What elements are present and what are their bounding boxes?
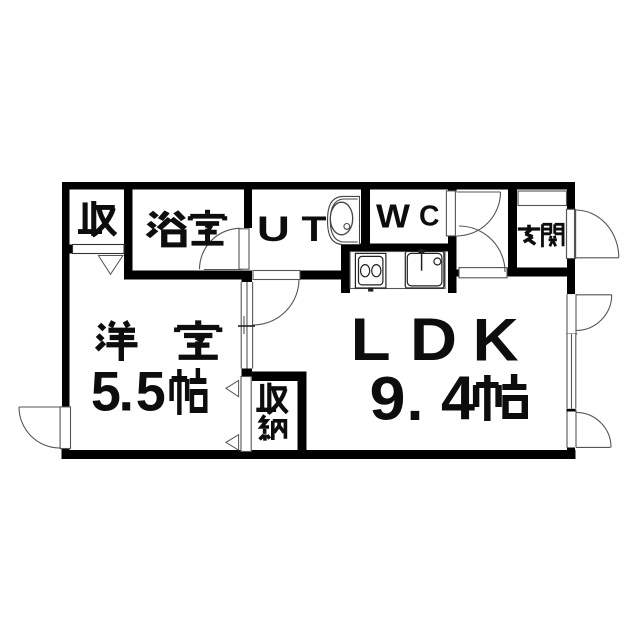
svg-text:D: D: [410, 306, 457, 373]
svg-text:5: 5: [91, 360, 121, 423]
svg-text:.: .: [407, 365, 424, 433]
svg-text:C: C: [419, 201, 440, 233]
svg-text:U: U: [257, 210, 290, 249]
svg-text:K: K: [473, 306, 519, 373]
svg-text:4: 4: [441, 364, 476, 433]
svg-text:.: .: [119, 360, 135, 423]
svg-text:5: 5: [136, 360, 166, 423]
svg-text:T: T: [302, 210, 327, 249]
svg-text:9: 9: [370, 364, 406, 432]
svg-text:L: L: [351, 306, 391, 373]
svg-text:W: W: [376, 198, 411, 235]
